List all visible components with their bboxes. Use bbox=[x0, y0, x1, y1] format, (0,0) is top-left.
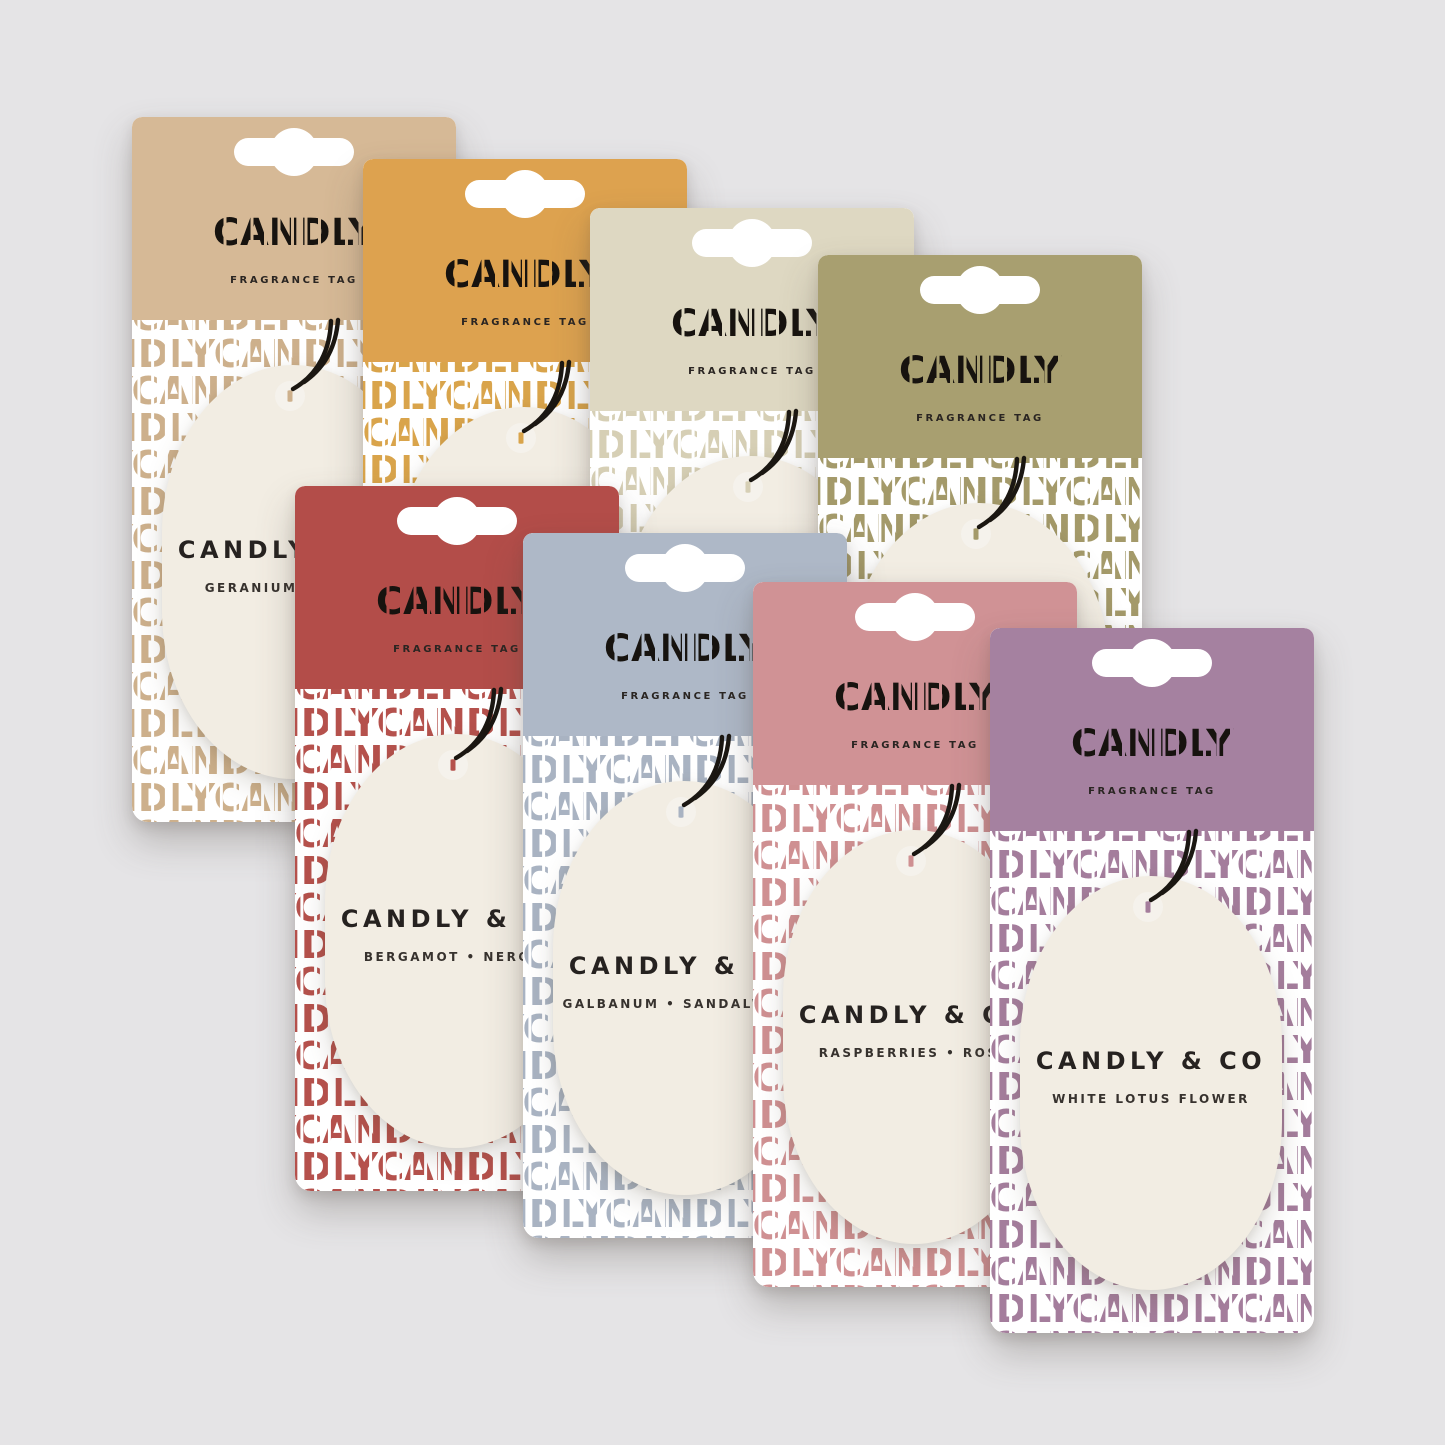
tag-brand-title: CANDLY & CO bbox=[1020, 1047, 1282, 1075]
brand-logo-text: CANDLY bbox=[899, 349, 1061, 392]
tag-fragrance-name: WHITE LOTUS FLOWER bbox=[1020, 1092, 1282, 1106]
hang-tag: CANDLY & CO WHITE LOTUS FLOWER bbox=[1020, 876, 1282, 1290]
header-label: FRAGRANCE TAG bbox=[818, 413, 1142, 424]
header-label: FRAGRANCE TAG bbox=[990, 786, 1314, 797]
brand-logo: CANDLY bbox=[818, 351, 1142, 391]
brand-logo-text: CANDLY bbox=[671, 302, 833, 345]
brand-logo-text: CANDLY bbox=[604, 627, 766, 670]
brand-logo: CANDLY bbox=[990, 724, 1314, 764]
brand-logo-text: CANDLY bbox=[834, 676, 996, 719]
fragrance-tag-card-white-lotus: CANDLYCANDLYCANDLY CANDLYCANDLYCANDLY CA… bbox=[990, 628, 1314, 1333]
brand-logo-text: CANDLY bbox=[376, 580, 538, 623]
scene: CANDLYCANDLYCANDLY CANDLYCANDLYCANDLY CA… bbox=[0, 0, 1445, 1445]
brand-logo-text: CANDLY bbox=[1071, 722, 1233, 765]
brand-logo-text: CANDLY bbox=[444, 253, 606, 296]
brand-logo-text: CANDLY bbox=[213, 211, 375, 254]
